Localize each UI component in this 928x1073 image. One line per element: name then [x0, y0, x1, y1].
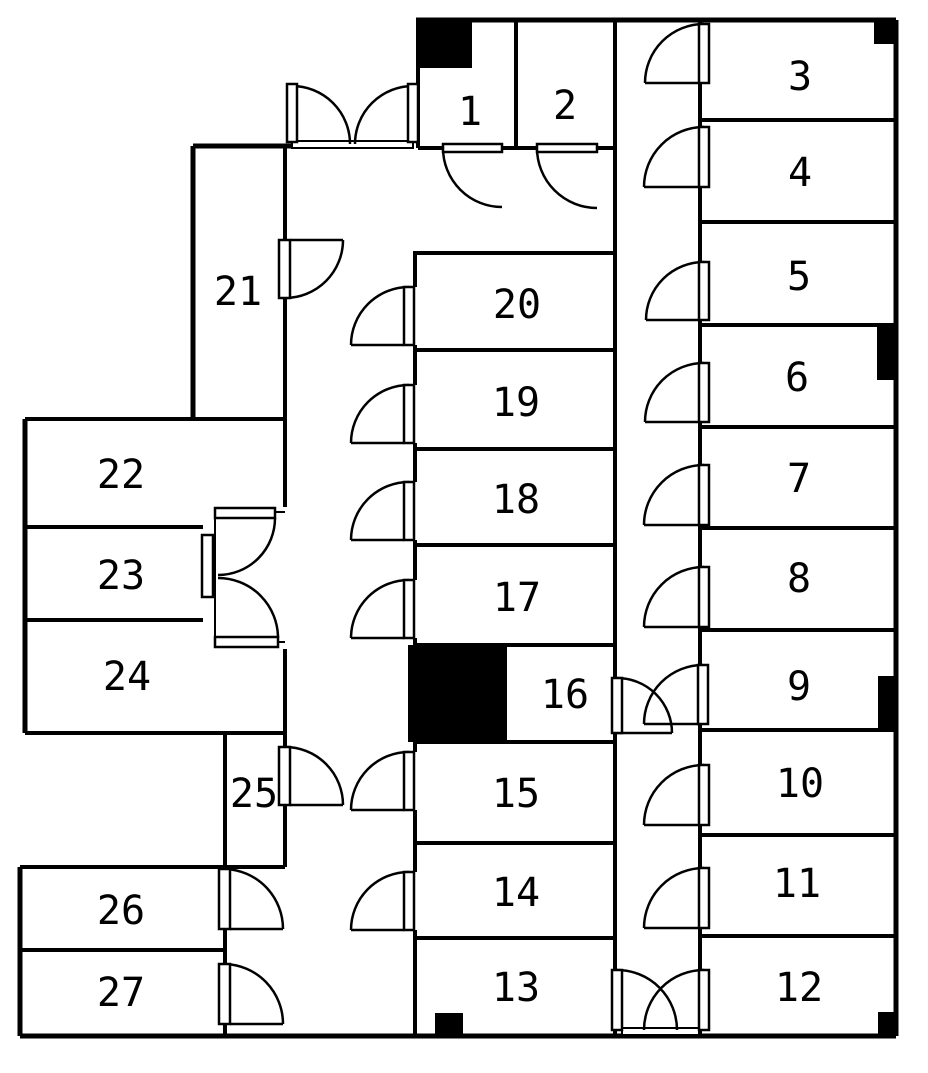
- doors-layer: [202, 24, 709, 1035]
- room-label-18: 18: [492, 477, 540, 523]
- black-marker: [418, 20, 472, 68]
- door-swing-arc: [644, 868, 704, 928]
- door-leaf: [219, 964, 230, 1024]
- door-leaf: [699, 465, 709, 525]
- door-threshold: [622, 1028, 699, 1035]
- black-marker: [874, 20, 896, 44]
- room-label-22: 22: [97, 452, 145, 498]
- door-leaf: [612, 970, 622, 1030]
- room-label-14: 14: [492, 870, 540, 916]
- door-leaf: [699, 127, 709, 187]
- door-swing-arc: [351, 580, 409, 638]
- room-label-16: 16: [541, 672, 589, 718]
- floor-plan-page: 1234567891011121314151617181920212223242…: [0, 0, 928, 1068]
- door-swing-arc: [443, 148, 502, 207]
- black-marker: [878, 1012, 896, 1036]
- door-leaf: [287, 84, 297, 142]
- door-swing-arc: [218, 518, 275, 575]
- room-label-2: 2: [553, 83, 577, 129]
- black-marker: [877, 327, 896, 380]
- room-label-21: 21: [214, 269, 262, 315]
- door-swing-arc: [645, 363, 704, 422]
- room-label-19: 19: [492, 380, 540, 426]
- room-label-25: 25: [230, 771, 278, 817]
- room-label-12: 12: [775, 965, 823, 1011]
- door-swing-arc: [351, 872, 409, 930]
- door-leaf: [408, 84, 418, 142]
- door-swing-arc: [644, 127, 704, 187]
- room-label-17: 17: [493, 575, 541, 621]
- floor-plan-svg: 1234567891011121314151617181920212223242…: [0, 0, 928, 1068]
- room-label-20: 20: [493, 282, 541, 328]
- room-label-15: 15: [492, 771, 540, 817]
- door-swing-arc: [292, 86, 350, 144]
- door-leaf: [404, 872, 414, 930]
- door-leaf: [699, 868, 709, 928]
- door-leaf: [537, 144, 597, 152]
- door-leaf: [404, 482, 414, 540]
- door-swing-arc: [351, 287, 409, 345]
- door-swing-arc: [285, 747, 343, 805]
- room-label-8: 8: [787, 556, 811, 602]
- black-marker: [408, 645, 505, 742]
- room-label-3: 3: [788, 54, 812, 100]
- door-swing-arc: [644, 465, 704, 525]
- door-swing-arc: [225, 964, 283, 1024]
- door-swing-arc: [646, 262, 704, 320]
- door-leaf: [443, 144, 502, 152]
- door-leaf: [404, 385, 414, 443]
- door-leaf: [612, 678, 622, 733]
- door-swing-arc: [351, 752, 409, 810]
- door-leaf: [699, 24, 709, 83]
- room-label-11: 11: [773, 861, 821, 907]
- room-label-24: 24: [103, 654, 151, 700]
- walls-layer: [20, 20, 896, 1036]
- door-leaf: [699, 363, 709, 422]
- door-leaf: [215, 637, 278, 647]
- door-swing-arc: [644, 567, 704, 627]
- door-leaf: [699, 970, 709, 1030]
- door-swing-arc: [644, 765, 704, 825]
- room-label-5: 5: [787, 254, 811, 300]
- door-swing-arc: [644, 970, 704, 1030]
- door-leaf: [279, 747, 290, 805]
- black-marker: [878, 676, 896, 730]
- black-marker: [435, 1013, 463, 1036]
- door-swing-arc: [355, 86, 413, 144]
- door-swing-arc: [225, 869, 283, 929]
- room-label-27: 27: [97, 970, 145, 1016]
- room-label-1: 1: [458, 89, 482, 135]
- room-label-10: 10: [776, 761, 824, 807]
- door-swing-arc: [351, 385, 409, 443]
- room-label-9: 9: [787, 664, 811, 710]
- door-swing-arc: [644, 665, 703, 724]
- door-leaf: [699, 765, 709, 825]
- door-leaf: [699, 567, 709, 627]
- door-swing-arc: [645, 24, 704, 83]
- door-leaf: [698, 665, 708, 724]
- door-leaf: [404, 752, 414, 810]
- door-swing-arc: [617, 970, 677, 1030]
- door-swing-arc: [537, 148, 597, 208]
- door-leaf: [219, 869, 230, 929]
- room-label-6: 6: [785, 355, 809, 401]
- door-threshold: [292, 141, 413, 148]
- door-swing-arc: [285, 240, 343, 298]
- door-leaf: [404, 580, 414, 638]
- door-leaf: [699, 262, 709, 320]
- door-swing-arc: [351, 482, 409, 540]
- door-leaf: [215, 508, 275, 518]
- door-leaf: [202, 535, 213, 597]
- room-label-23: 23: [97, 553, 145, 599]
- room-label-26: 26: [97, 888, 145, 934]
- door-leaf: [404, 287, 414, 345]
- room-label-7: 7: [787, 456, 811, 502]
- room-label-13: 13: [492, 965, 540, 1011]
- door-swing-arc: [218, 578, 278, 638]
- door-leaf: [279, 240, 290, 298]
- room-label-4: 4: [788, 150, 812, 196]
